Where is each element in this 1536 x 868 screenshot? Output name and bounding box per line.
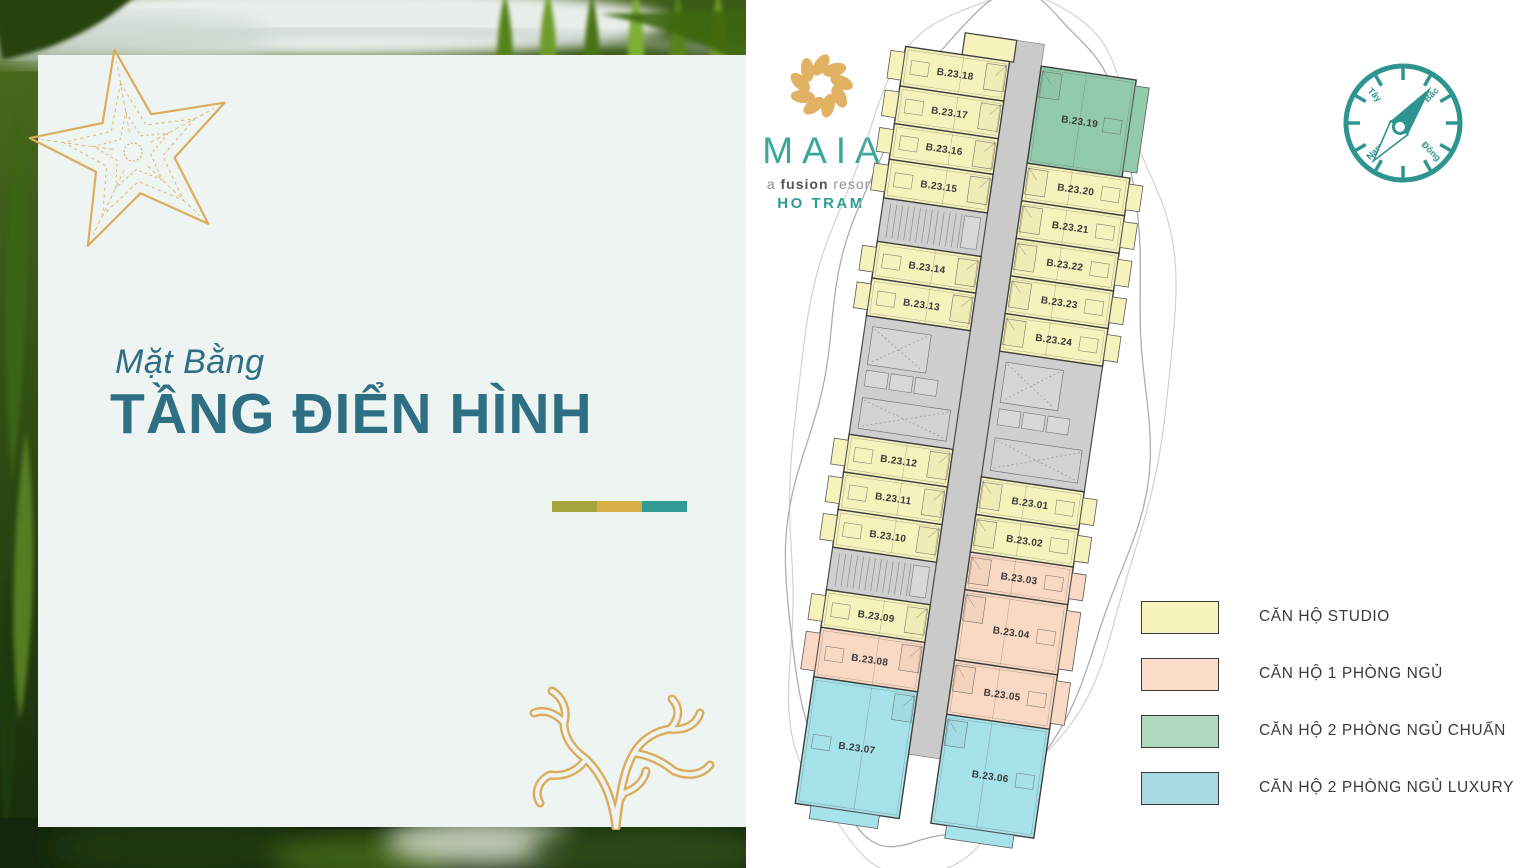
svg-text:Đông: Đông: [1420, 140, 1443, 163]
legend-label-3: CĂN HỘ 2 PHÒNG NGỦ LUXURY: [1259, 779, 1514, 797]
legend-item-1: CĂN HỘ 1 PHÒNG NGỦ: [1141, 657, 1514, 691]
accent-bar-0: [552, 501, 597, 512]
title-panel: Mặt Bằng TẦNG ĐIỂN HÌNH: [38, 55, 746, 827]
subtitle: Mặt Bằng: [115, 343, 265, 382]
accent-bar-2: [642, 501, 687, 512]
legend-label-0: CĂN HỘ STUDIO: [1259, 608, 1390, 626]
accent-bars: [552, 501, 687, 512]
legend-item-2: CĂN HỘ 2 PHÒNG NGỦ CHUẨN: [1141, 714, 1514, 748]
legend-label-2: CĂN HỘ 2 PHÒNG NGỦ CHUẨN: [1259, 722, 1506, 740]
legend-swatch-0: [1141, 601, 1219, 634]
legend-label-1: CĂN HỘ 1 PHÒNG NGỦ: [1259, 665, 1443, 683]
compass-icon: BắcTâyNamĐông: [1337, 57, 1469, 189]
svg-text:Tây: Tây: [1366, 86, 1384, 104]
starfish-icon: [26, 41, 261, 291]
unit-B.23.06: B.23.06: [929, 714, 1050, 851]
legend-item-3: CĂN HỘ 2 PHÒNG NGỦ LUXURY: [1141, 771, 1514, 805]
core-lobby-3: [981, 351, 1102, 492]
legend-swatch-1: [1141, 658, 1219, 691]
legend-swatch-2: [1141, 715, 1219, 748]
page-title: TẦNG ĐIỂN HÌNH: [110, 381, 593, 447]
accent-bar-1: [597, 501, 642, 512]
legend: CĂN HỘ STUDIOCĂN HỘ 1 PHÒNG NGỦCĂN HỘ 2 …: [1141, 600, 1514, 828]
core-lobby-1: [849, 316, 970, 450]
legend-swatch-3: [1141, 772, 1219, 805]
slide: Mặt Bằng TẦNG ĐIỂN HÌNH MAIA a fusion re…: [0, 0, 1536, 868]
unit-B.23.19: B.23.19: [1027, 66, 1150, 179]
coral-icon: [496, 645, 746, 830]
legend-item-0: CĂN HỘ STUDIO: [1141, 600, 1514, 634]
unit-B.23.07: B.23.07: [793, 677, 917, 832]
